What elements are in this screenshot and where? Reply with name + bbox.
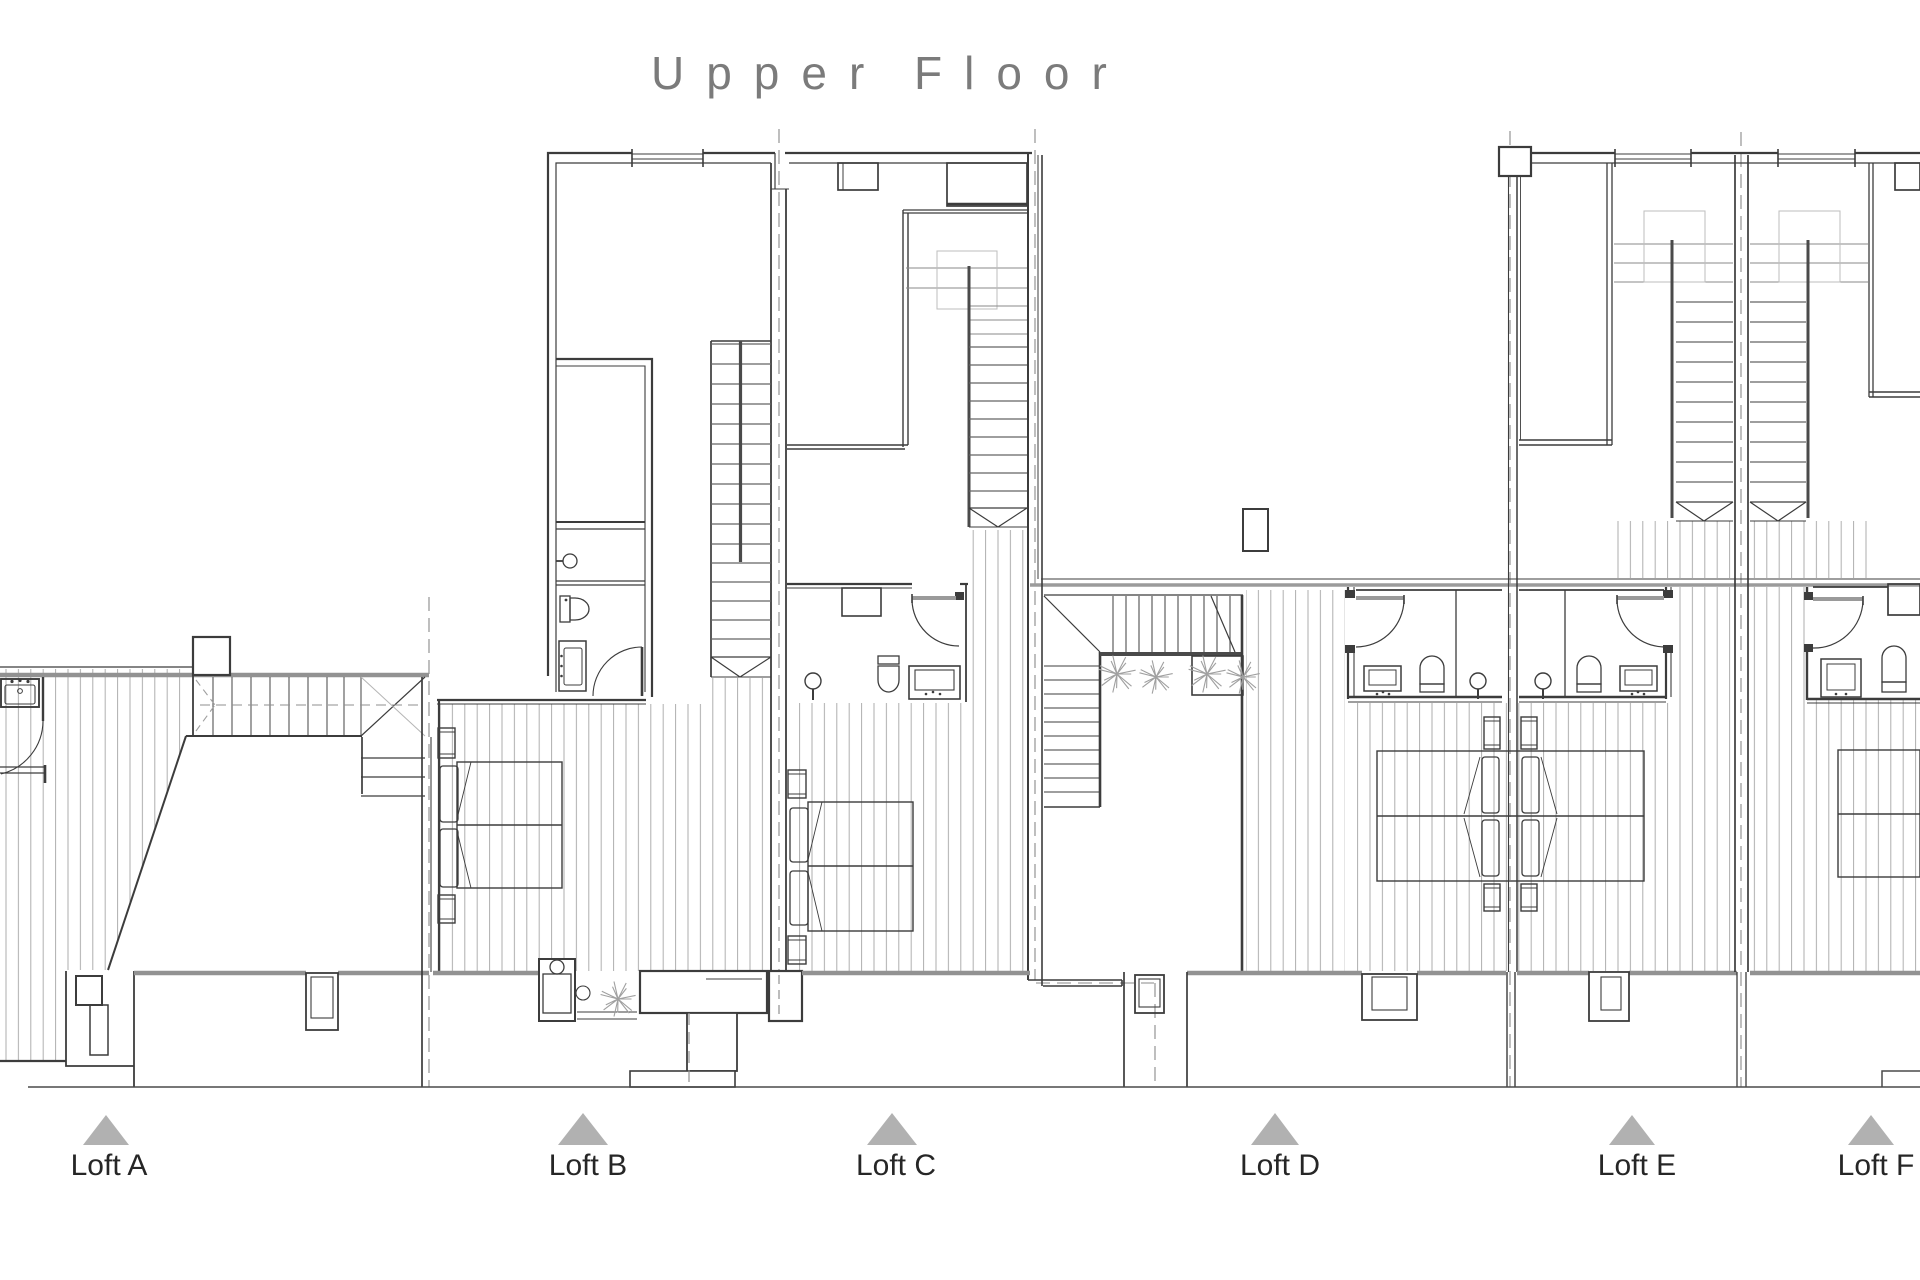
svg-text:Loft C: Loft C — [856, 1149, 936, 1182]
svg-text:Loft D: Loft D — [1240, 1149, 1320, 1182]
svg-text:Loft F: Loft F — [1838, 1149, 1915, 1182]
svg-text:Loft E: Loft E — [1598, 1149, 1676, 1182]
svg-text:Loft B: Loft B — [549, 1149, 627, 1182]
svg-text:Upper: Upper — [651, 47, 886, 99]
svg-text:Loft A: Loft A — [71, 1149, 148, 1182]
svg-text:Floor: Floor — [914, 47, 1129, 99]
